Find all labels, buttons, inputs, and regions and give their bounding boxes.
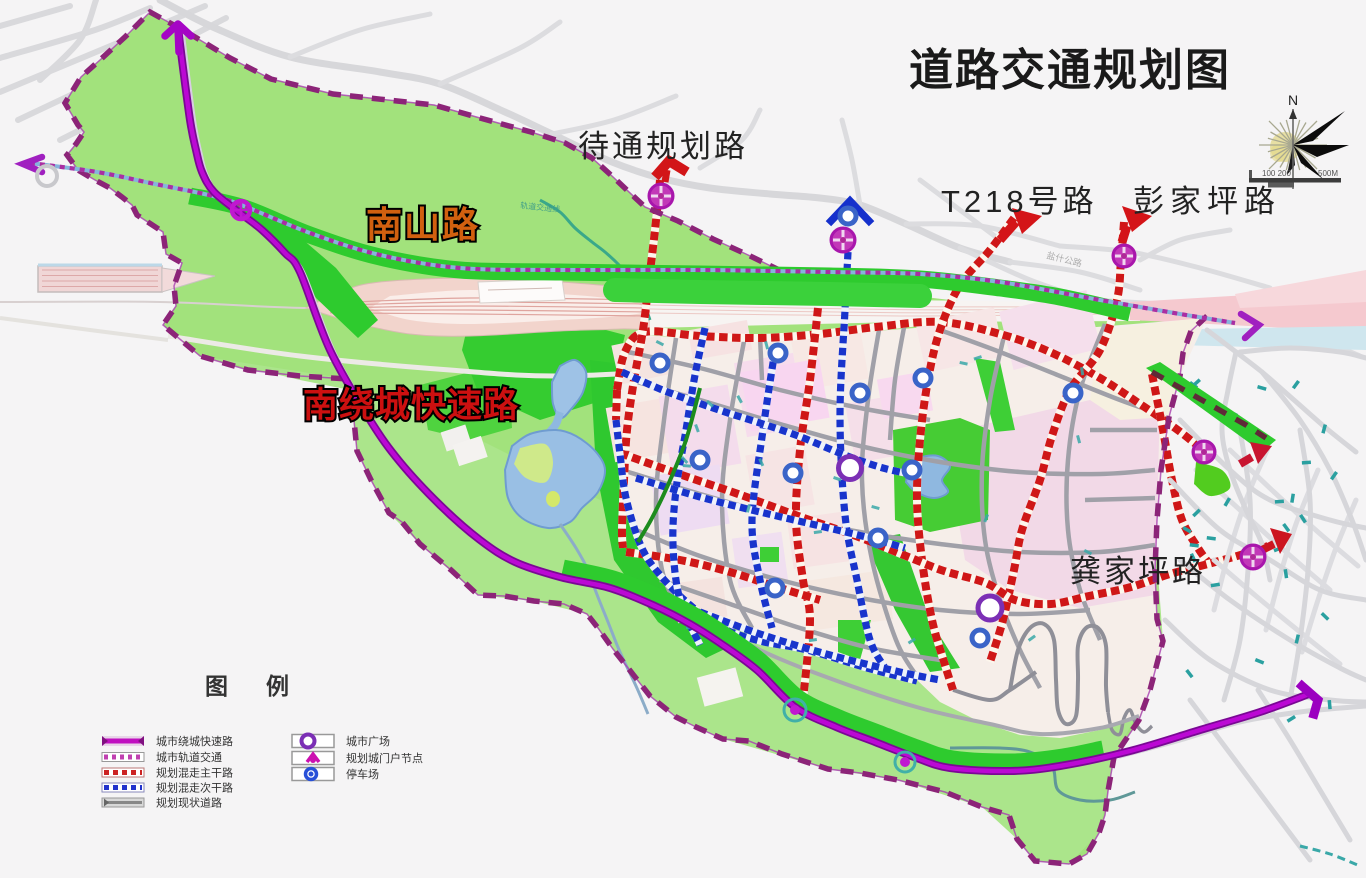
svg-text:500M: 500M bbox=[1318, 169, 1338, 178]
svg-text:N: N bbox=[1288, 92, 1298, 108]
svg-text:彭家坪路: 彭家坪路 bbox=[1133, 184, 1281, 219]
svg-text:南山路: 南山路 bbox=[366, 204, 480, 245]
svg-text:100 200: 100 200 bbox=[1262, 169, 1291, 178]
svg-text:城市广场: 城市广场 bbox=[346, 734, 390, 748]
svg-text:城市轨道交通: 城市轨道交通 bbox=[156, 750, 222, 764]
svg-text:规划混走次干路: 规划混走次干路 bbox=[156, 781, 233, 795]
svg-text:T218号路: T218号路 bbox=[941, 184, 1098, 219]
svg-text:图例: 图例 bbox=[205, 673, 327, 699]
svg-text:龚家坪路: 龚家坪路 bbox=[1070, 554, 1206, 589]
svg-text:规划现状道路: 规划现状道路 bbox=[156, 796, 222, 810]
svg-text:规划混走主干路: 规划混走主干路 bbox=[156, 766, 233, 780]
svg-text:规划城门户节点: 规划城门户节点 bbox=[346, 751, 423, 765]
svg-text:待通规划路: 待通规划路 bbox=[578, 129, 748, 164]
svg-text:南绕城快速路: 南绕城快速路 bbox=[303, 386, 519, 425]
svg-text:停车场: 停车场 bbox=[346, 767, 379, 781]
svg-text:道路交通规划图: 道路交通规划图 bbox=[909, 46, 1231, 95]
svg-text:城市绕城快速路: 城市绕城快速路 bbox=[156, 734, 233, 748]
